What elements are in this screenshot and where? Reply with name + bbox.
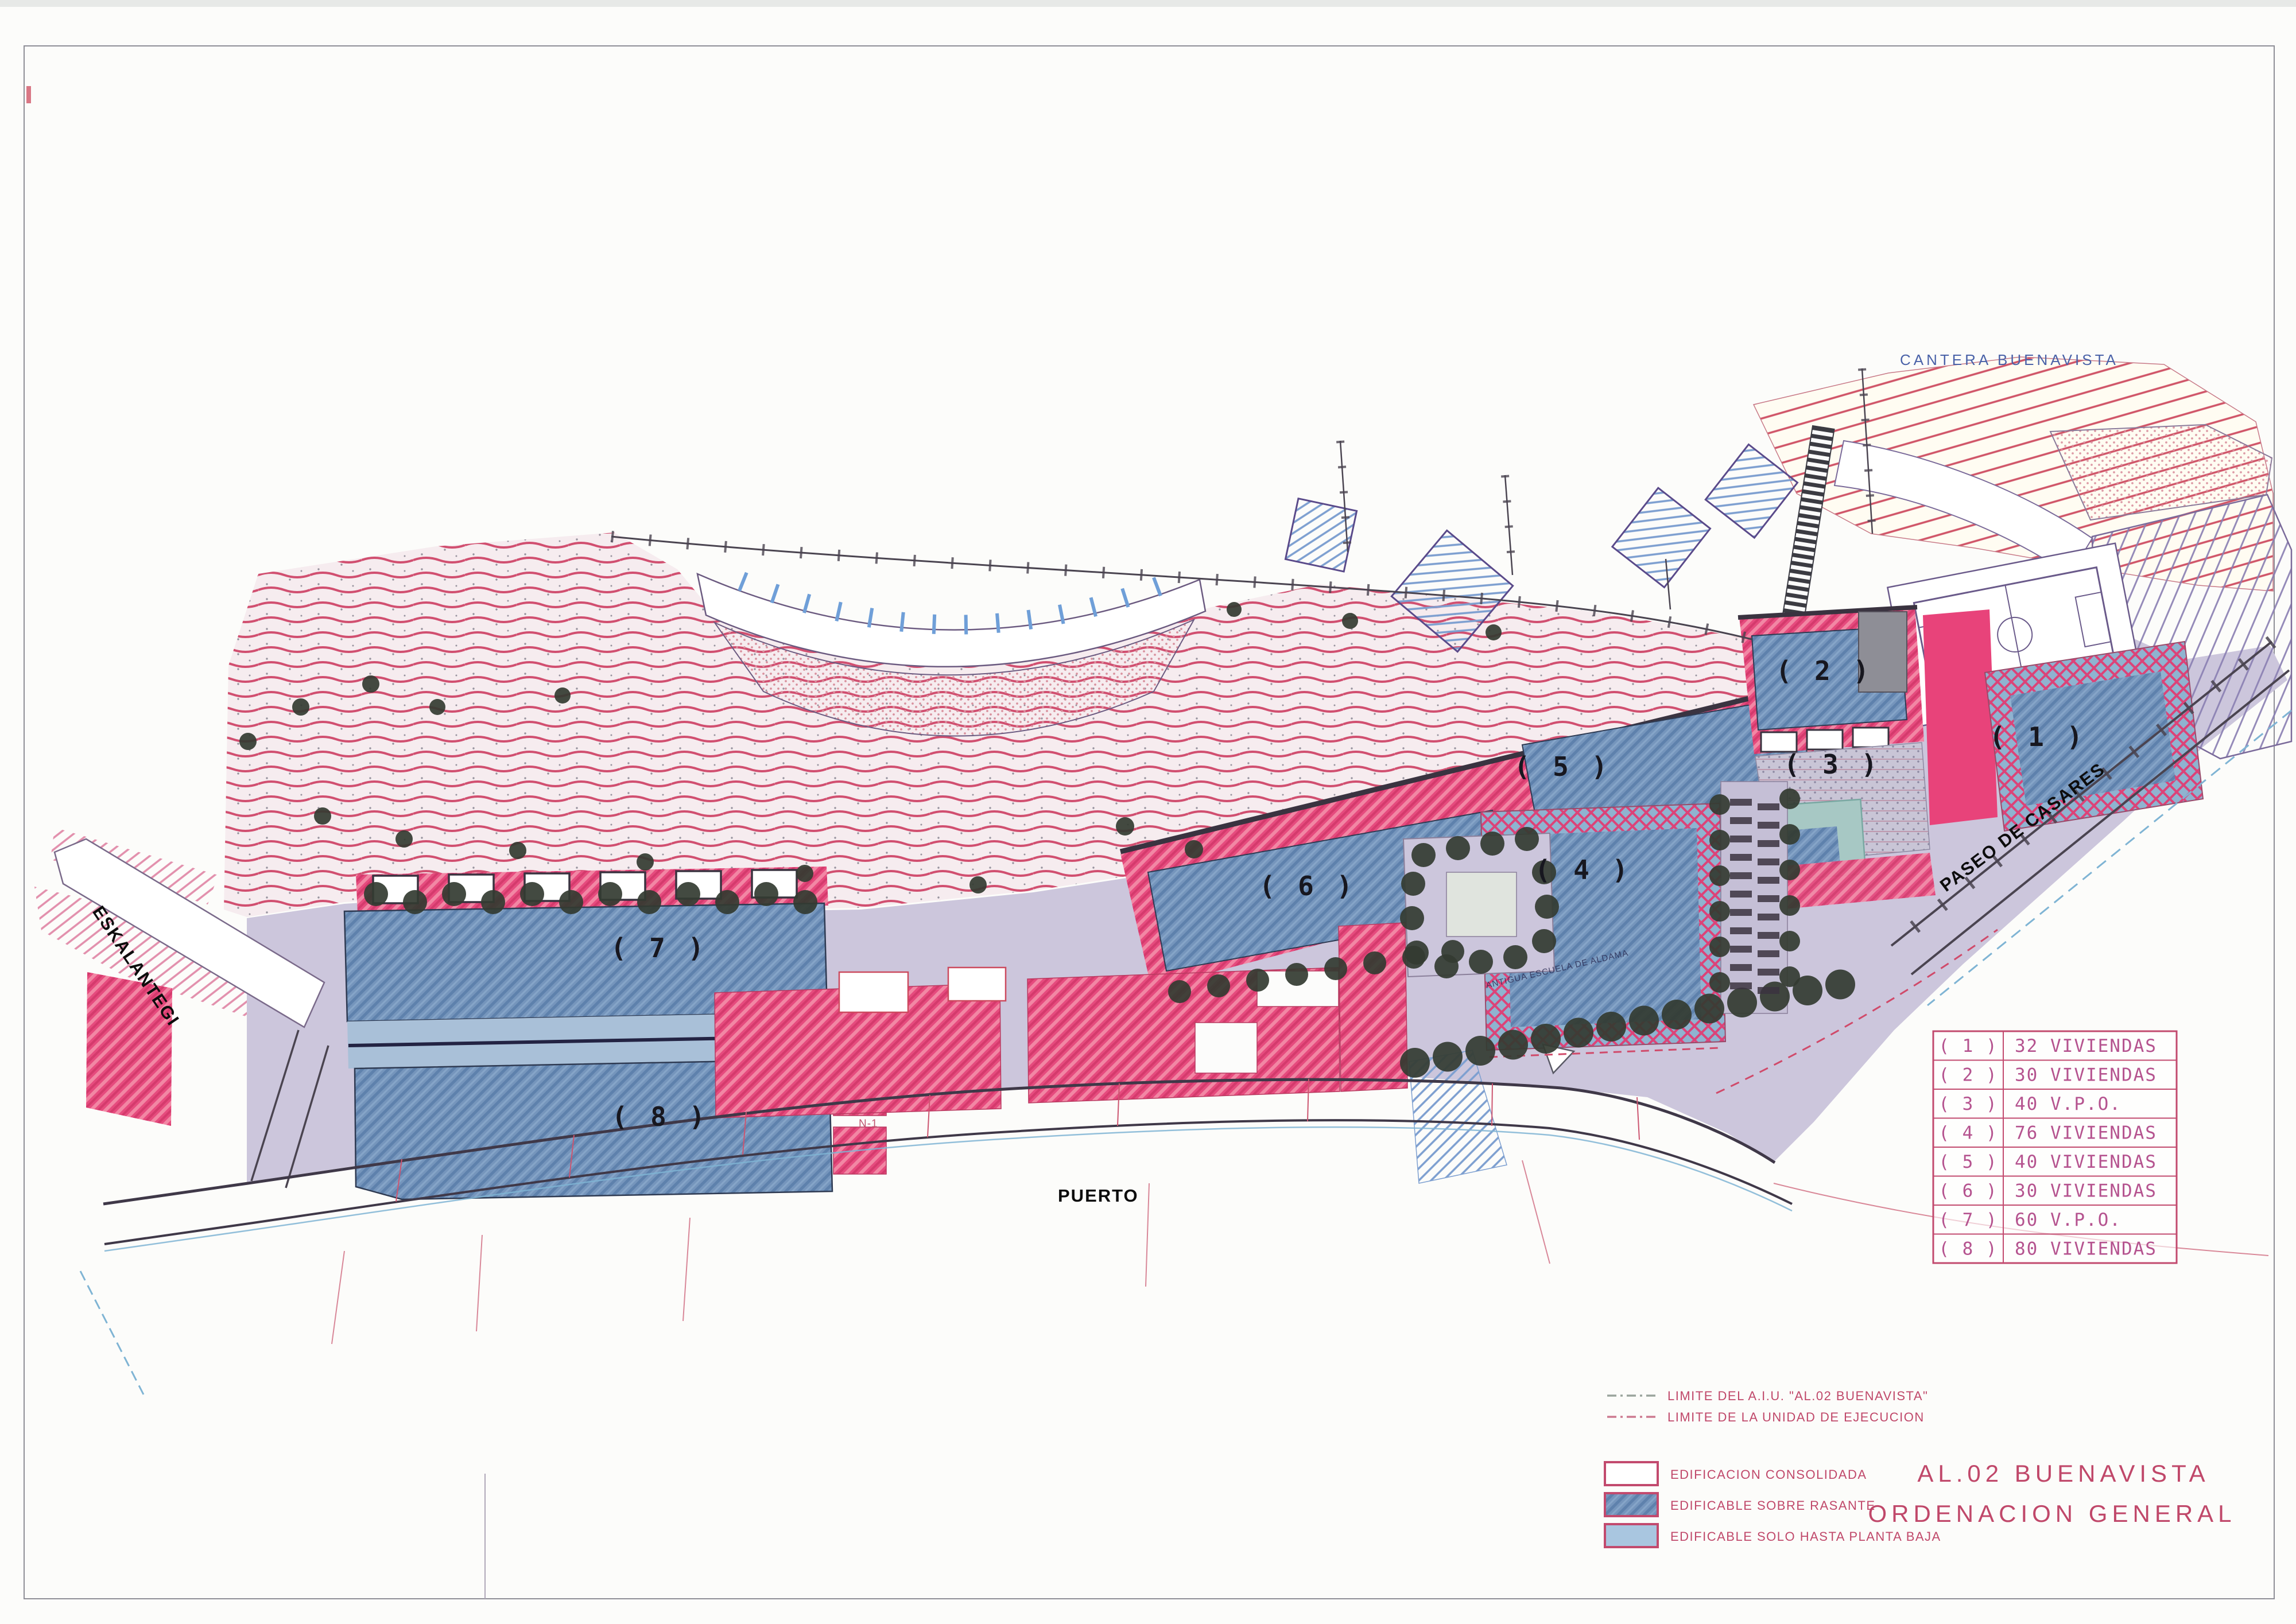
label-puerto: PUERTO xyxy=(1058,1186,1139,1206)
tree-icon xyxy=(1116,817,1134,836)
fill-legend-swatch xyxy=(1605,1524,1658,1547)
tree-icon xyxy=(1709,865,1730,886)
courtyard xyxy=(1195,1023,1257,1073)
tree-icon xyxy=(1709,830,1730,850)
tree-icon xyxy=(1480,832,1504,856)
table-zone-value: 30 VIVIENDAS xyxy=(2015,1181,2157,1202)
table-zone-marker: ( 7 ) xyxy=(1938,1210,1998,1230)
tree-icon xyxy=(1401,872,1425,896)
parking-bay xyxy=(1758,877,1779,884)
tree-icon xyxy=(1564,1018,1593,1048)
tree-icon xyxy=(1400,1048,1430,1078)
tree-icon xyxy=(796,865,813,882)
tree-icon xyxy=(1185,840,1203,858)
tree-icon xyxy=(1207,974,1230,997)
tree-icon xyxy=(520,882,544,906)
tree-icon xyxy=(1709,794,1730,815)
table-zone-marker: ( 3 ) xyxy=(1938,1094,1998,1114)
tree-icon xyxy=(1779,931,1800,951)
tree-icon xyxy=(1709,901,1730,922)
fill-legend-label: EDIFICABLE SOBRE RASANTE xyxy=(1670,1498,1876,1513)
tree-icon xyxy=(1779,824,1800,845)
zone-marker-3: ( 3 ) xyxy=(1784,749,1880,780)
fill-legend-label: EDIFICACION CONSOLIDADA xyxy=(1670,1467,1867,1482)
arcade xyxy=(1853,728,1888,747)
tree-icon xyxy=(1246,969,1269,992)
tree-icon xyxy=(793,890,817,914)
label-cantera-buenavista: CANTERA BUENAVISTA xyxy=(1900,351,2119,368)
table-zone-marker: ( 8 ) xyxy=(1938,1239,1998,1260)
tree-icon xyxy=(559,890,583,914)
tree-icon xyxy=(1596,1012,1626,1042)
table-zone-value: 40 VIVIENDAS xyxy=(2015,1152,2157,1172)
tree-icon xyxy=(1629,1006,1659,1036)
fill-legend-label: EDIFICABLE SOLO HASTA PLANTA BAJA xyxy=(1670,1529,1941,1544)
tree-icon xyxy=(676,882,700,906)
tree-icon xyxy=(1515,827,1539,851)
zone-marker-2: ( 2 ) xyxy=(1776,655,1872,686)
table-zone-marker: ( 2 ) xyxy=(1938,1065,1998,1086)
tree-icon xyxy=(1441,940,1464,963)
tree-icon xyxy=(442,882,466,906)
zone-marker-8: ( 8 ) xyxy=(612,1101,708,1132)
tree-icon xyxy=(1402,946,1425,969)
tree-icon xyxy=(292,698,309,716)
tree-icon xyxy=(509,842,526,859)
parking-bay xyxy=(1730,817,1752,824)
parking-bay xyxy=(1758,987,1779,994)
tree-icon xyxy=(364,882,388,906)
tree-icon xyxy=(598,882,622,906)
sheet-title-code: AL.02 BUENAVISTA xyxy=(1917,1460,2209,1487)
tree-icon xyxy=(1465,1036,1495,1066)
tree-icon xyxy=(715,890,739,914)
label-road-n1: N-1 xyxy=(859,1118,878,1130)
plaza-center xyxy=(1446,872,1517,937)
tree-icon xyxy=(1400,906,1424,930)
plot-divider xyxy=(1492,1083,1492,1126)
tree-icon xyxy=(1469,950,1493,974)
table-zone-marker: ( 4 ) xyxy=(1938,1123,1998,1144)
table-zone-marker: ( 5 ) xyxy=(1938,1152,1998,1172)
tree-icon xyxy=(1662,1000,1692,1029)
tree-icon xyxy=(969,876,987,893)
tree-icon xyxy=(481,890,505,914)
tree-icon xyxy=(1342,613,1358,629)
zone-marker-7: ( 7 ) xyxy=(611,933,707,963)
tree-icon xyxy=(1446,836,1470,860)
tree-icon xyxy=(637,853,654,871)
parking-bay xyxy=(1758,803,1779,810)
tree-icon xyxy=(1779,966,1800,987)
parking-bay xyxy=(1758,969,1779,976)
parking-bay xyxy=(1730,946,1752,953)
tree-icon xyxy=(1709,972,1730,993)
arcade xyxy=(1807,730,1843,749)
tree-icon xyxy=(1411,843,1436,867)
tree-icon xyxy=(1486,624,1502,640)
zone-marker-4: ( 4 ) xyxy=(1535,854,1631,885)
terrace-tick xyxy=(997,613,999,633)
tree-icon xyxy=(754,882,778,906)
parking-bay xyxy=(1730,909,1752,916)
site-plan-map: CANTERA BUENAVISTA PASEO DE CASARES ESKA… xyxy=(0,0,2296,1624)
tree-icon xyxy=(1433,1042,1463,1072)
tree-icon xyxy=(1227,602,1242,617)
parking-bay xyxy=(1730,982,1752,989)
tree-icon xyxy=(1694,994,1724,1024)
plan-sheet: CANTERA BUENAVISTA PASEO DE CASARES ESKA… xyxy=(0,0,2296,1624)
parking-bay xyxy=(1730,964,1752,971)
tree-icon xyxy=(637,890,661,914)
tree-icon xyxy=(239,733,257,750)
parking-bay xyxy=(1758,950,1779,957)
registration-mark xyxy=(26,86,31,103)
zone-marker-5: ( 5 ) xyxy=(1514,751,1611,782)
tree-icon xyxy=(1168,980,1191,1003)
zone-marker-6: ( 6 ) xyxy=(1259,871,1356,902)
tree-icon xyxy=(1779,788,1800,809)
table-zone-value: 40 V.P.O. xyxy=(2015,1094,2122,1114)
tree-icon xyxy=(1285,963,1308,986)
tree-icon xyxy=(1324,957,1347,980)
parking-bay xyxy=(1730,927,1752,934)
tree-icon xyxy=(1779,860,1800,880)
parking-bay xyxy=(1730,836,1752,842)
table-zone-value: 32 VIVIENDAS xyxy=(2015,1036,2157,1056)
table-zone-value: 60 V.P.O. xyxy=(2015,1210,2122,1230)
tree-icon xyxy=(1503,945,1527,969)
parking-bay xyxy=(1730,891,1752,898)
scan-edge xyxy=(0,0,2296,7)
table-zone-value: 30 VIVIENDAS xyxy=(2015,1065,2157,1086)
tree-icon xyxy=(403,890,427,914)
fill-legend-swatch xyxy=(1605,1462,1658,1485)
terrace-tick xyxy=(901,612,903,632)
tree-icon xyxy=(1760,982,1790,1012)
table-zone-marker: ( 6 ) xyxy=(1938,1181,1998,1202)
built-slab xyxy=(1923,609,1998,825)
parking-bay xyxy=(1730,854,1752,861)
tree-icon xyxy=(1498,1030,1528,1060)
tree-icon xyxy=(1532,929,1556,953)
tree-icon xyxy=(429,699,445,715)
table-zone-marker: ( 1 ) xyxy=(1938,1036,1998,1056)
terrace-tick xyxy=(934,615,934,634)
parking-bay xyxy=(1758,840,1779,847)
fill-legend-swatch xyxy=(1605,1493,1658,1516)
zone-marker-1: ( 1 ) xyxy=(1989,721,2086,752)
parking-bay xyxy=(1758,895,1779,902)
existing-building xyxy=(948,968,1006,1001)
zone-legend-table: ( 1 )32 VIVIENDAS( 2 )30 VIVIENDAS( 3 )4… xyxy=(1933,1031,2177,1263)
parking-bay xyxy=(1758,932,1779,939)
parking-bay xyxy=(1730,872,1752,879)
sheet-title-name: ORDENACION GENERAL xyxy=(1868,1500,2236,1527)
table-zone-value: 76 VIVIENDAS xyxy=(2015,1123,2157,1144)
tree-icon xyxy=(554,687,571,704)
built-block xyxy=(1339,923,1407,1091)
parking-bay xyxy=(1730,799,1752,806)
parking-bay xyxy=(1758,914,1779,920)
parking-bay xyxy=(1758,858,1779,865)
tree-icon xyxy=(1535,895,1559,919)
terrace-tick xyxy=(966,615,967,634)
tree-icon xyxy=(1531,1024,1561,1054)
tree-icon xyxy=(1779,895,1800,916)
tree-icon xyxy=(1363,951,1386,974)
table-zone-value: 80 VIVIENDAS xyxy=(2015,1239,2157,1260)
existing-building xyxy=(839,972,908,1012)
tree-icon xyxy=(362,675,379,693)
tree-icon xyxy=(1727,988,1757,1017)
tree-icon xyxy=(314,807,331,825)
tree-icon xyxy=(395,830,413,848)
limit-line-label: LIMITE DE LA UNIDAD DE EJECUCION xyxy=(1667,1410,1925,1424)
tree-icon xyxy=(1709,937,1730,957)
limit-line-label: LIMITE DEL A.I.U. "AL.02 BUENAVISTA" xyxy=(1667,1389,1928,1403)
parking-bay xyxy=(1758,822,1779,829)
tree-icon xyxy=(1825,970,1855,1000)
